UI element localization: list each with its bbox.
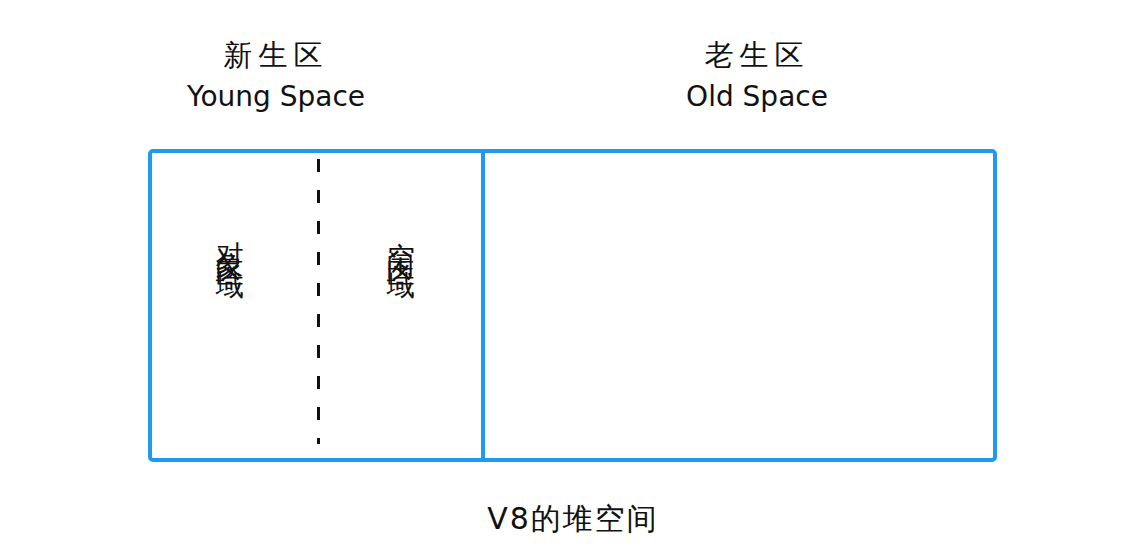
young-space-region: 对象区域 空闲区域 xyxy=(152,153,481,458)
v8-heap-diagram: 新生区 Young Space 老生区 Old Space 对象区域 空闲区域 … xyxy=(0,0,1142,550)
old-space-title: 老生区 Old Space xyxy=(686,34,828,118)
heap-caption: V8的堆空间 xyxy=(487,499,659,540)
old-space-title-zh: 老生区 xyxy=(686,34,828,76)
old-space-region xyxy=(485,153,993,458)
semispace-dashed-divider xyxy=(317,159,320,444)
heap-box: 对象区域 空闲区域 xyxy=(148,149,997,462)
young-space-title-zh: 新生区 xyxy=(187,34,365,76)
free-area-label: 空闲区域 xyxy=(386,219,414,259)
young-space-title-en: Young Space xyxy=(187,76,365,118)
old-space-title-en: Old Space xyxy=(686,76,828,118)
object-area-label: 对象区域 xyxy=(215,219,243,259)
young-space-title: 新生区 Young Space xyxy=(187,34,365,118)
